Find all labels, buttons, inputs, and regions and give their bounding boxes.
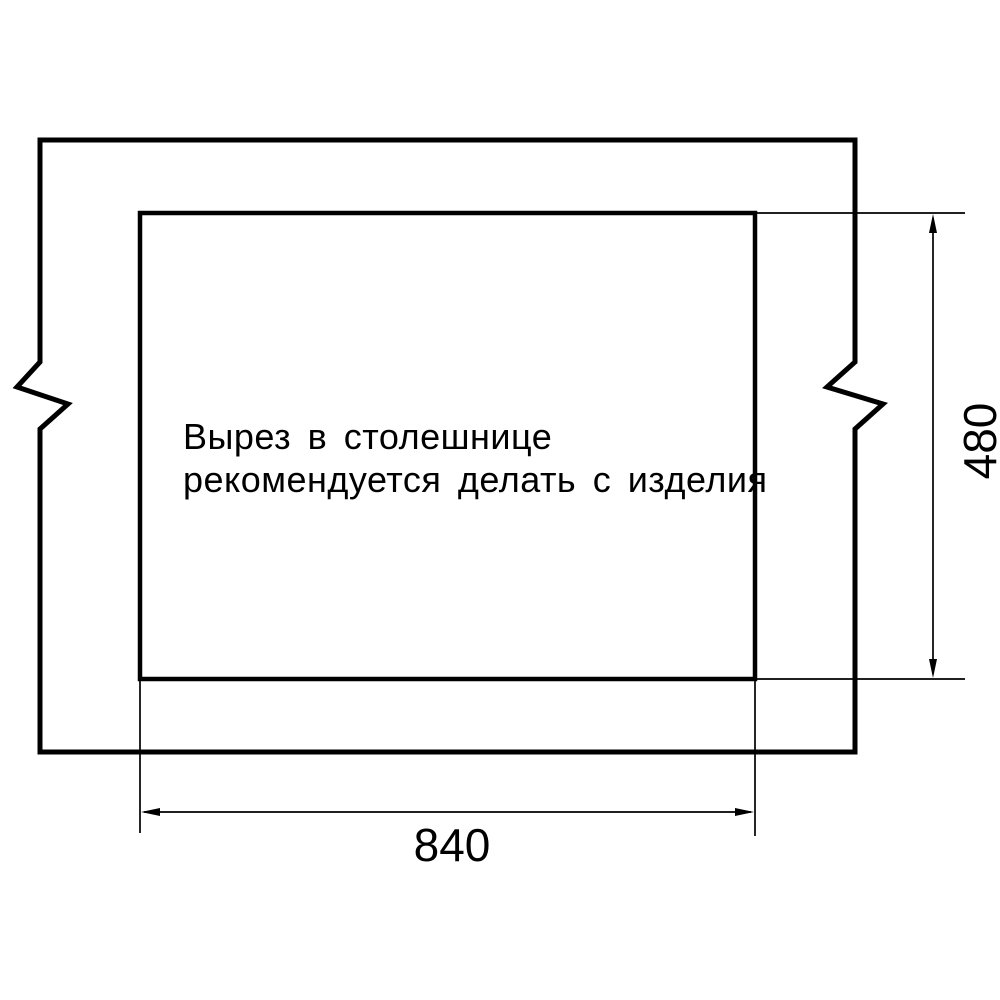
note-text-line1: Вырез в столешнице (183, 416, 552, 457)
width-dim-arrow-right (735, 808, 754, 816)
countertop-cutout-diagram: Вырез в столешнице рекомендуется делать … (0, 0, 1000, 1000)
width-dim-arrow-left (141, 808, 160, 816)
height-dimension-label: 480 (954, 403, 1000, 480)
height-dim-arrow-top (929, 214, 937, 233)
width-dimension-label: 840 (414, 819, 491, 871)
note-text-line2: рекомендуется делать с изделия (183, 459, 767, 500)
technical-drawing-page: Вырез в столешнице рекомендуется делать … (0, 0, 1000, 1000)
height-dim-arrow-bottom (929, 659, 937, 678)
